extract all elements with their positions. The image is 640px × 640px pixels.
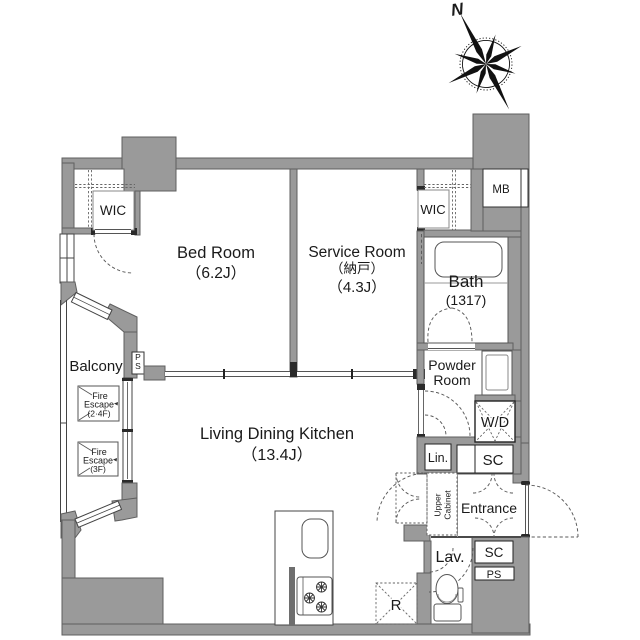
svg-text:(2·4F): (2·4F) bbox=[87, 409, 110, 419]
svg-text:Cabinet: Cabinet bbox=[442, 490, 452, 520]
svg-text:Entrance: Entrance bbox=[461, 500, 517, 516]
svg-text:Upper: Upper bbox=[432, 493, 442, 516]
svg-text:MB: MB bbox=[492, 184, 510, 196]
svg-text:Balcony: Balcony bbox=[69, 358, 123, 375]
svg-text:Lin.: Lin. bbox=[428, 451, 448, 465]
svg-text:S: S bbox=[135, 361, 141, 371]
svg-text:（6.2J）: （6.2J） bbox=[186, 265, 246, 282]
svg-text:SC: SC bbox=[483, 452, 504, 469]
svg-text:Living Dining Kitchen: Living Dining Kitchen bbox=[200, 425, 354, 443]
svg-text:(1317): (1317) bbox=[446, 292, 486, 308]
svg-text:SC: SC bbox=[485, 545, 504, 560]
svg-text:Bed Room: Bed Room bbox=[177, 244, 255, 262]
svg-text:Bath: Bath bbox=[449, 272, 484, 291]
svg-text:WIC: WIC bbox=[100, 203, 126, 218]
svg-text:Lav.: Lav. bbox=[435, 549, 464, 566]
svg-text:Room: Room bbox=[433, 372, 470, 388]
svg-text:Service Room: Service Room bbox=[308, 244, 405, 261]
svg-text:(3F): (3F) bbox=[90, 464, 106, 474]
svg-text:W/D: W/D bbox=[481, 415, 509, 431]
svg-text:（13.4J）: （13.4J） bbox=[241, 446, 312, 464]
svg-text:（4.3J）: （4.3J） bbox=[328, 279, 386, 296]
svg-text:R: R bbox=[391, 597, 402, 614]
svg-text:PS: PS bbox=[487, 569, 502, 581]
svg-text:（納戸）: （納戸） bbox=[330, 261, 384, 276]
svg-text:Powder: Powder bbox=[428, 357, 476, 373]
svg-text:WIC: WIC bbox=[420, 202, 445, 217]
